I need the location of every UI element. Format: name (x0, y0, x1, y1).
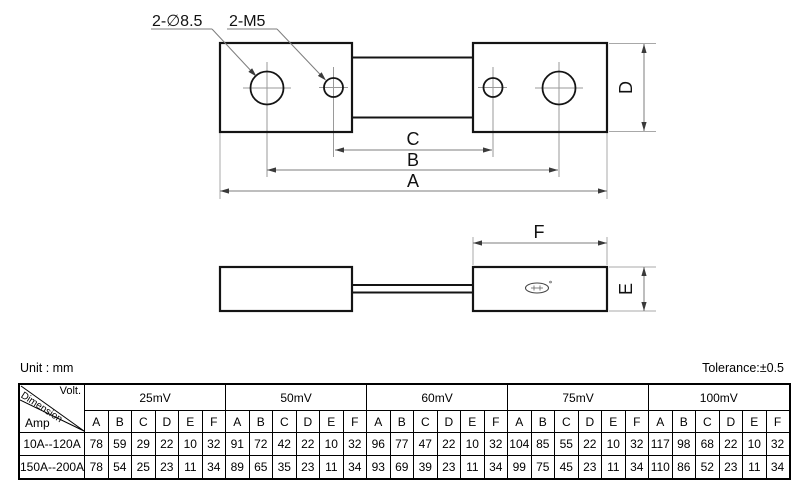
dimension-value-cell: 23 (719, 456, 743, 480)
top-view: 2-∅8.5 2-M5 C B A (151, 13, 656, 199)
dim-f-arrow-right (598, 240, 607, 245)
dimension-value-cell: 59 (108, 433, 132, 456)
dimension-value-cell: 86 (672, 456, 696, 480)
dimension-value-cell: 32 (766, 433, 790, 456)
dimension-letter-cell: B (390, 411, 414, 433)
dimension-letter-cell: D (578, 411, 602, 433)
dimension-letter-cell: B (108, 411, 132, 433)
dimension-letter-cell: D (296, 411, 320, 433)
dimension-letter-cell: E (743, 411, 767, 433)
dimension-value-cell: 68 (696, 433, 720, 456)
dimension-letter-cell: A (85, 411, 109, 433)
dimension-value-cell: 10 (602, 433, 626, 456)
dimension-table: Volt.DimensionAmp25mV50mV60mV75mV100mVAB… (18, 383, 791, 480)
dim-d-arrow-top (641, 44, 646, 53)
corner-volt-label: Volt. (60, 386, 81, 397)
dimension-value-cell: 11 (320, 456, 344, 480)
dimension-value-cell: 25 (132, 456, 156, 480)
dimension-value-cell: 99 (508, 456, 532, 480)
dimension-value-cell: 34 (343, 456, 367, 480)
dimension-value-cell: 23 (437, 456, 461, 480)
dimension-value-cell: 110 (649, 456, 673, 480)
dimension-letter-cell: F (625, 411, 649, 433)
amp-range-label: 150A--200A (19, 456, 85, 480)
dim-label-f: F (534, 222, 545, 242)
tolerance-note: Tolerance:±0.5 (702, 361, 784, 375)
dim-label-b: B (407, 150, 419, 170)
dimension-value-cell: 23 (578, 456, 602, 480)
dimension-letter-cell: E (461, 411, 485, 433)
dimension-value-cell: 54 (108, 456, 132, 480)
dim-c-arrow-right (483, 147, 492, 152)
dimension-value-cell: 77 (390, 433, 414, 456)
dimension-value-cell: 93 (367, 456, 391, 480)
dimension-value-cell: 34 (766, 456, 790, 480)
hole-thread-callout: 2-M5 (229, 13, 266, 30)
dimension-letter-cell: F (202, 411, 226, 433)
dim-a-arrow-left (220, 188, 229, 193)
dimension-value-cell: 32 (484, 433, 508, 456)
dimension-letter-cell: B (249, 411, 273, 433)
dim-b-arrow-right (549, 167, 558, 172)
dimension-value-cell: 10 (461, 433, 485, 456)
voltage-header-row: Volt.DimensionAmp25mV50mV60mV75mV100mV (19, 384, 790, 411)
corner-amp-label: Amp (25, 417, 50, 429)
dim-e-arrow-bottom (641, 302, 646, 311)
dimension-value-cell: 89 (226, 456, 250, 480)
dimension-value-cell: 29 (132, 433, 156, 456)
dimension-value-cell: 78 (85, 456, 109, 480)
technical-drawing: 2-∅8.5 2-M5 C B A (0, 0, 800, 350)
shunt-datasheet-page: 2-∅8.5 2-M5 C B A (0, 0, 800, 496)
dimension-value-cell: 11 (179, 456, 203, 480)
dim-b-arrow-left (267, 167, 276, 172)
dim-label-e: E (616, 283, 636, 295)
dim-d-arrow-bottom (641, 122, 646, 131)
dimension-value-cell: 72 (249, 433, 273, 456)
dimension-value-cell: 35 (273, 456, 297, 480)
dimension-value-cell: 23 (155, 456, 179, 480)
dimension-value-cell: 22 (437, 433, 461, 456)
hole-thread-leader (277, 29, 324, 79)
dimension-letter-cell: A (508, 411, 532, 433)
amp-range-label: 10A--120A (19, 433, 85, 456)
dim-label-a: A (407, 171, 419, 191)
dimension-value-cell: 117 (649, 433, 673, 456)
voltage-group-header: 100mV (649, 384, 790, 411)
dim-a-arrow-right (598, 188, 607, 193)
dim-c-arrow-left (335, 147, 344, 152)
dimension-value-cell: 10 (179, 433, 203, 456)
amp-range-row: 10A--120A7859292210329172422210329677472… (19, 433, 790, 456)
dimension-letter-cell: E (320, 411, 344, 433)
dimension-letter-cell: B (531, 411, 555, 433)
dimension-letter-cell: E (179, 411, 203, 433)
brand-stamp (526, 281, 552, 293)
dimension-value-cell: 96 (367, 433, 391, 456)
dimension-letter-cell: C (555, 411, 579, 433)
dimension-value-cell: 55 (555, 433, 579, 456)
dimension-value-cell: 75 (531, 456, 555, 480)
dimension-value-cell: 52 (696, 456, 720, 480)
dimension-value-cell: 32 (202, 433, 226, 456)
dimension-value-cell: 78 (85, 433, 109, 456)
dimension-value-cell: 45 (555, 456, 579, 480)
dimension-value-cell: 22 (578, 433, 602, 456)
dimension-value-cell: 39 (414, 456, 438, 480)
hole-diameter-leader (212, 29, 254, 74)
dimension-value-cell: 47 (414, 433, 438, 456)
dim-label-c: C (407, 129, 420, 149)
dimension-letter-cell: F (766, 411, 790, 433)
dimension-letter-row: ABCDEFABCDEFABCDEFABCDEFABCDEF (19, 411, 790, 433)
dimension-value-cell: 22 (155, 433, 179, 456)
dimension-value-cell: 32 (625, 433, 649, 456)
dimension-value-cell: 85 (531, 433, 555, 456)
dimension-letter-cell: B (672, 411, 696, 433)
dimension-value-cell: 11 (743, 456, 767, 480)
dimension-value-cell: 69 (390, 456, 414, 480)
dimension-value-cell: 10 (320, 433, 344, 456)
side-view: F E (220, 222, 656, 311)
dimension-value-cell: 32 (343, 433, 367, 456)
dimension-value-cell: 91 (226, 433, 250, 456)
dimension-value-cell: 11 (602, 456, 626, 480)
dimension-value-cell: 34 (625, 456, 649, 480)
dimension-value-cell: 104 (508, 433, 532, 456)
dimension-letter-cell: A (649, 411, 673, 433)
dimension-letter-cell: F (343, 411, 367, 433)
dimension-value-cell: 34 (202, 456, 226, 480)
dimension-value-cell: 42 (273, 433, 297, 456)
dimension-letter-cell: C (132, 411, 156, 433)
side-view-left-block (220, 267, 352, 311)
dimension-value-cell: 65 (249, 456, 273, 480)
dimension-letter-cell: D (437, 411, 461, 433)
dimension-value-cell: 23 (296, 456, 320, 480)
table-corner-cell: Volt.DimensionAmp (19, 384, 85, 433)
dimension-value-cell: 34 (484, 456, 508, 480)
dimension-letter-cell: A (226, 411, 250, 433)
dimension-value-cell: 22 (719, 433, 743, 456)
voltage-group-header: 75mV (508, 384, 649, 411)
dimension-value-cell: 22 (296, 433, 320, 456)
dimension-letter-cell: D (719, 411, 743, 433)
voltage-group-header: 25mV (85, 384, 226, 411)
voltage-group-header: 50mV (226, 384, 367, 411)
dim-f-arrow-left (473, 240, 482, 245)
dimension-value-cell: 10 (743, 433, 767, 456)
dimension-letter-cell: D (155, 411, 179, 433)
dim-label-d: D (616, 81, 636, 94)
dimension-letter-cell: C (414, 411, 438, 433)
amp-range-row: 150A--200A785425231134896535231134936939… (19, 456, 790, 480)
dimension-value-cell: 11 (461, 456, 485, 480)
unit-note: Unit : mm (20, 361, 73, 375)
dimension-letter-cell: F (484, 411, 508, 433)
dimension-value-cell: 98 (672, 433, 696, 456)
hole-diameter-callout: 2-∅8.5 (152, 13, 203, 30)
dimension-letter-cell: C (273, 411, 297, 433)
dimension-letter-cell: E (602, 411, 626, 433)
dim-e-arrow-top (641, 267, 646, 276)
voltage-group-header: 60mV (367, 384, 508, 411)
dimension-letter-cell: C (696, 411, 720, 433)
dimension-letter-cell: A (367, 411, 391, 433)
